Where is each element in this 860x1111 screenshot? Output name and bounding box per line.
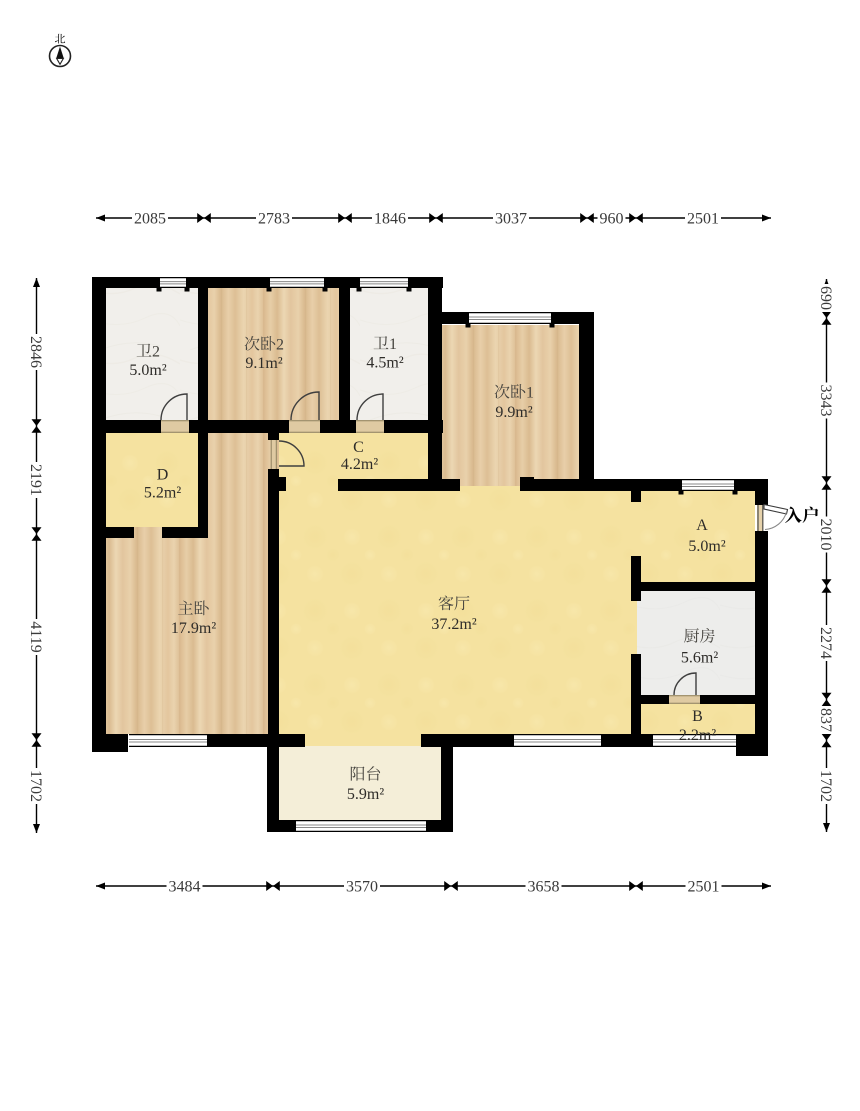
svg-text:960: 960 — [600, 211, 624, 228]
svg-text:1702: 1702 — [817, 770, 834, 802]
svg-text:2: 2 — [152, 344, 160, 361]
svg-text:2274: 2274 — [817, 627, 834, 659]
svg-text:2846: 2846 — [27, 336, 44, 368]
svg-text:2085: 2085 — [134, 211, 166, 228]
svg-text:690: 690 — [817, 286, 834, 310]
svg-text:1846: 1846 — [374, 211, 406, 228]
svg-text:5.0m²: 5.0m² — [129, 362, 166, 379]
svg-text:9.1m²: 9.1m² — [245, 355, 282, 372]
svg-text:4.2m²: 4.2m² — [341, 456, 378, 473]
svg-text:2010: 2010 — [817, 519, 834, 551]
svg-text:37.2m²: 37.2m² — [431, 616, 476, 633]
svg-text:3037: 3037 — [495, 211, 527, 228]
svg-text:3658: 3658 — [528, 879, 560, 896]
svg-text:D: D — [157, 467, 169, 484]
svg-text:2191: 2191 — [27, 464, 44, 496]
svg-text:3570: 3570 — [346, 879, 378, 896]
svg-text:2.2m²: 2.2m² — [679, 727, 716, 744]
svg-text:2: 2 — [276, 337, 284, 354]
svg-text:4119: 4119 — [27, 621, 44, 652]
svg-text:5.2m²: 5.2m² — [144, 485, 181, 502]
svg-text:17.9m²: 17.9m² — [171, 620, 216, 637]
svg-text:837: 837 — [817, 708, 834, 732]
svg-text:5.6m²: 5.6m² — [681, 650, 718, 667]
svg-text:3484: 3484 — [169, 879, 201, 896]
svg-text:5.9m²: 5.9m² — [347, 786, 384, 803]
svg-text:2501: 2501 — [688, 879, 720, 896]
svg-text:3343: 3343 — [817, 385, 834, 417]
svg-text:1702: 1702 — [27, 770, 44, 802]
svg-text:C: C — [353, 439, 364, 456]
svg-text:1: 1 — [389, 336, 397, 353]
svg-text:9.9m²: 9.9m² — [495, 404, 532, 421]
svg-text:2783: 2783 — [258, 211, 290, 228]
svg-text:5.0m²: 5.0m² — [688, 538, 725, 555]
svg-text:4.5m²: 4.5m² — [366, 355, 403, 372]
svg-text:2501: 2501 — [687, 211, 719, 228]
svg-text:B: B — [692, 708, 703, 725]
svg-text:1: 1 — [526, 385, 534, 402]
svg-text:A: A — [696, 517, 708, 534]
